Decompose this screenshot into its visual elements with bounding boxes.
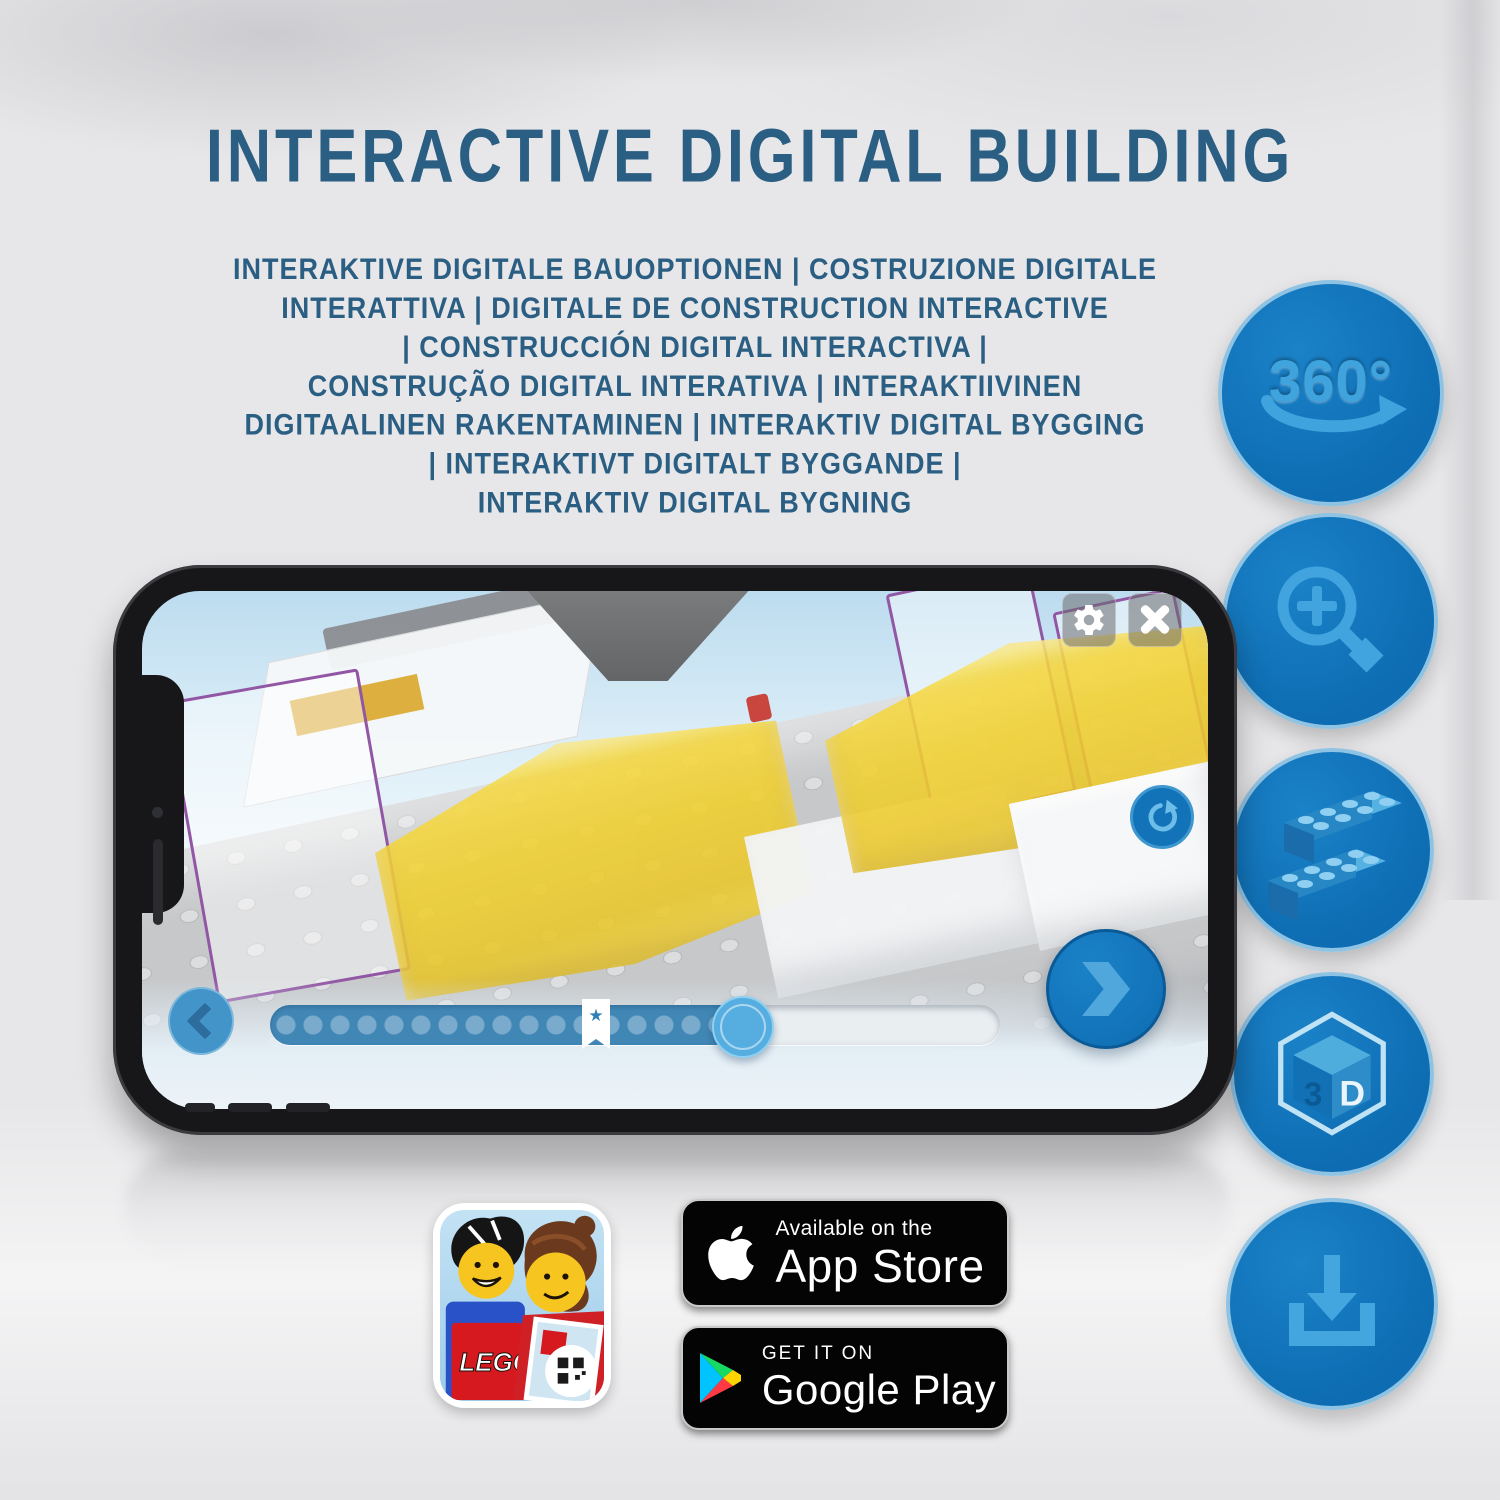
build-progress-slider[interactable]: ★	[270, 1005, 1000, 1045]
multilanguage-subtitle: INTERAKTIVE DIGITALE BAUOPTIONEN | COSTR…	[145, 250, 1245, 522]
download-icon	[1269, 1241, 1395, 1367]
close-icon	[1129, 594, 1181, 646]
feature-brick	[1230, 748, 1434, 952]
google-play-tagline: GET IT ON	[762, 1343, 874, 1365]
rotation-arrow-icon	[1251, 389, 1411, 447]
cube-face-3: 3	[1304, 1076, 1323, 1113]
app-store-tagline: Available on the	[775, 1217, 932, 1241]
red-mini-piece	[746, 693, 773, 723]
subtitle-line: | INTERAKTIVT DIGITALT BYGGANDE |	[145, 444, 1245, 483]
settings-button[interactable]	[1062, 593, 1116, 647]
reset-view-button[interactable]	[1130, 785, 1194, 849]
smartphone: ★	[113, 565, 1237, 1135]
previous-step-button[interactable]	[168, 987, 234, 1055]
app-store-label: App Store	[775, 1243, 984, 1289]
cube-face-d: D	[1339, 1073, 1365, 1113]
chevron-left-icon	[187, 1003, 224, 1040]
lego-app-icon[interactable]: LEGO	[433, 1203, 611, 1408]
subtitle-line: | CONSTRUCCIÓN DIGITAL INTERACTIVA |	[145, 328, 1245, 367]
gear-icon	[1071, 602, 1107, 638]
subtitle-line: INTERAKTIVE DIGITALE BAUOPTIONEN | COSTR…	[145, 250, 1245, 289]
progress-fill	[270, 1005, 754, 1045]
subtitle-line: DIGITAALINEN RAKENTAMINEN | INTERAKTIV D…	[145, 406, 1245, 445]
minifigures-illustration: LEGO	[440, 1210, 604, 1401]
app-icon-artwork: LEGO	[440, 1210, 604, 1401]
next-step-button[interactable]	[1046, 929, 1166, 1049]
earpiece-speaker	[153, 839, 163, 925]
marketing-graphic: INTERACTIVE DIGITAL BUILDING INTERAKTIVE…	[0, 0, 1500, 1500]
slider-handle[interactable]	[712, 996, 774, 1058]
google-play-label: Google Play	[762, 1367, 996, 1413]
phone-reflection	[125, 1150, 1230, 1265]
subtitle-line: INTERATTIVA | DIGITALE DE CONSTRUCTION I…	[145, 289, 1245, 328]
feature-3d-view: 3 D	[1230, 972, 1434, 1176]
subtitle-line: INTERAKTIV DIGITAL BYGNING	[145, 483, 1245, 522]
feature-download	[1226, 1198, 1438, 1410]
google-play-icon	[694, 1350, 744, 1406]
front-camera	[152, 807, 163, 818]
zoom-in-icon	[1265, 556, 1395, 686]
phone-side-button	[185, 1103, 215, 1112]
page-title: INTERACTIVE DIGITAL BUILDING	[49, 112, 1451, 199]
feature-360-rotation: 360°	[1218, 280, 1444, 506]
3d-cube-icon: 3 D	[1264, 1006, 1400, 1142]
phone-volume-button	[228, 1103, 272, 1112]
building-app-screen: ★	[142, 591, 1208, 1109]
close-button[interactable]	[1128, 593, 1182, 647]
rotate-reset-icon	[1143, 798, 1181, 836]
phone-volume-button	[286, 1103, 330, 1112]
chevron-right-icon	[1082, 962, 1130, 1016]
app-store-badge[interactable]: Available on the App Store	[681, 1199, 1009, 1307]
phone-notch	[142, 675, 184, 913]
feature-zoom	[1222, 513, 1438, 729]
lego-brick-icon	[1254, 775, 1410, 925]
google-play-badge[interactable]: GET IT ON Google Play	[681, 1326, 1009, 1430]
subtitle-line: CONSTRUÇÃO DIGITAL INTERATIVA | INTERAKT…	[145, 367, 1245, 406]
apple-logo-icon	[705, 1222, 757, 1284]
